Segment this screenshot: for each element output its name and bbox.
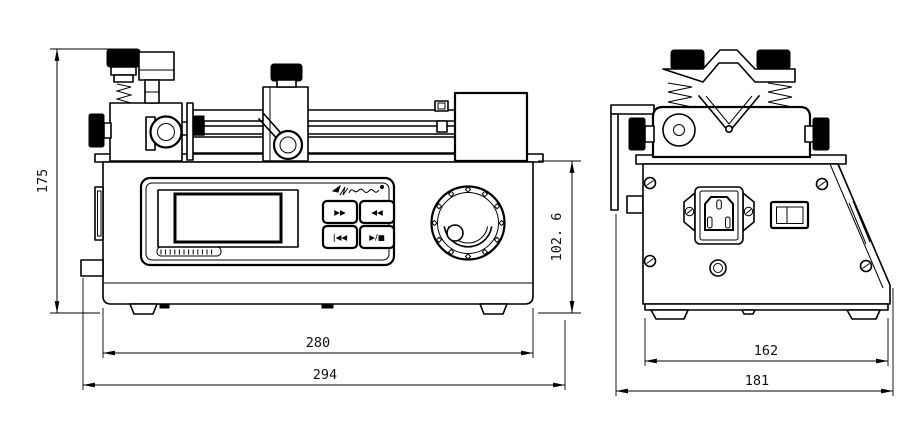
side-base xyxy=(645,304,888,319)
foot-left xyxy=(651,310,688,319)
dimension-label-181: 181 xyxy=(745,373,769,389)
dimension-label-162: 162 xyxy=(754,343,778,359)
control-panel: ▶▶ ◀◀ |◀◀ ▶/■ xyxy=(141,178,505,265)
side-knob-right xyxy=(813,118,829,150)
foot-tab xyxy=(322,304,333,308)
rear-body xyxy=(636,155,890,304)
clamp-knob-right xyxy=(757,50,790,69)
rocker-switch xyxy=(771,202,808,228)
fast-forward-glyph: ▶▶ xyxy=(334,208,346,217)
guide-rod-lower xyxy=(192,126,457,134)
jog-dial xyxy=(432,187,505,260)
clamp-knob-left xyxy=(671,50,704,69)
drawing-page: ▶▶ ◀◀ |◀◀ ▶/■ xyxy=(0,0,920,440)
bracket-block xyxy=(627,196,643,213)
dial-finger-dimple xyxy=(447,225,463,241)
plunger-holder xyxy=(139,52,174,80)
dimension-label-102-6: 102. 6 xyxy=(549,213,565,262)
knob-collar xyxy=(111,67,136,75)
foot-left xyxy=(130,304,157,314)
pusher-assembly xyxy=(89,49,204,161)
clamp-knob xyxy=(271,64,302,81)
pusher-plate xyxy=(187,103,193,160)
foot-tab xyxy=(742,310,755,314)
lcd-screen xyxy=(175,194,281,242)
dimension-label-175: 175 xyxy=(35,169,51,193)
lead-screw xyxy=(192,137,455,153)
release-knob-stem xyxy=(104,123,111,138)
technical-drawing: ▶▶ ◀◀ |◀◀ ▶/■ xyxy=(0,0,920,440)
start-stop-glyph: ▶/■ xyxy=(369,233,385,242)
spring xyxy=(768,83,792,107)
plunger-clamp-knob xyxy=(107,49,140,67)
release-knob-left xyxy=(89,114,104,147)
side-vent-strip xyxy=(95,187,103,240)
v-groove-tip xyxy=(726,126,732,132)
iec-power-inlet xyxy=(684,187,754,244)
end-block xyxy=(455,93,527,161)
socket-cavity xyxy=(705,197,733,230)
foot-right xyxy=(480,304,507,314)
rear-panel xyxy=(643,164,890,304)
round-connector xyxy=(710,260,726,276)
dimension-label-294: 294 xyxy=(313,367,337,383)
back-to-start-glyph: |◀◀ xyxy=(333,233,348,243)
knob-collar-small xyxy=(114,75,133,82)
side-knob-left xyxy=(629,118,645,150)
guide-rods xyxy=(192,110,457,153)
dial-rim xyxy=(432,187,505,260)
syringe-clamp xyxy=(259,64,308,161)
guide-rod-upper xyxy=(192,110,457,121)
v-clamp-head xyxy=(629,50,829,157)
bracket-plate-vertical xyxy=(611,114,618,210)
base-skirt xyxy=(645,304,888,310)
knob-stem xyxy=(645,126,654,142)
fast-reverse-glyph: ◀◀ xyxy=(371,208,383,217)
side-connector-block xyxy=(81,260,103,276)
head-roller xyxy=(663,114,695,146)
bracket-plate-top xyxy=(611,105,654,114)
side-view: 162 181 xyxy=(611,50,893,396)
spring xyxy=(668,83,692,107)
rod-clamp-bottom xyxy=(437,121,447,132)
pusher-roller xyxy=(151,117,182,148)
foot-tab xyxy=(160,304,169,308)
front-view: ▶▶ ◀◀ |◀◀ ▶/■ xyxy=(35,49,581,390)
half-nut-block xyxy=(193,116,204,134)
foot-right xyxy=(847,310,880,319)
clamp-knob-neck xyxy=(277,80,296,87)
dimension-label-280: 280 xyxy=(306,335,330,351)
spring xyxy=(117,84,131,103)
clamp-roller xyxy=(274,131,302,159)
